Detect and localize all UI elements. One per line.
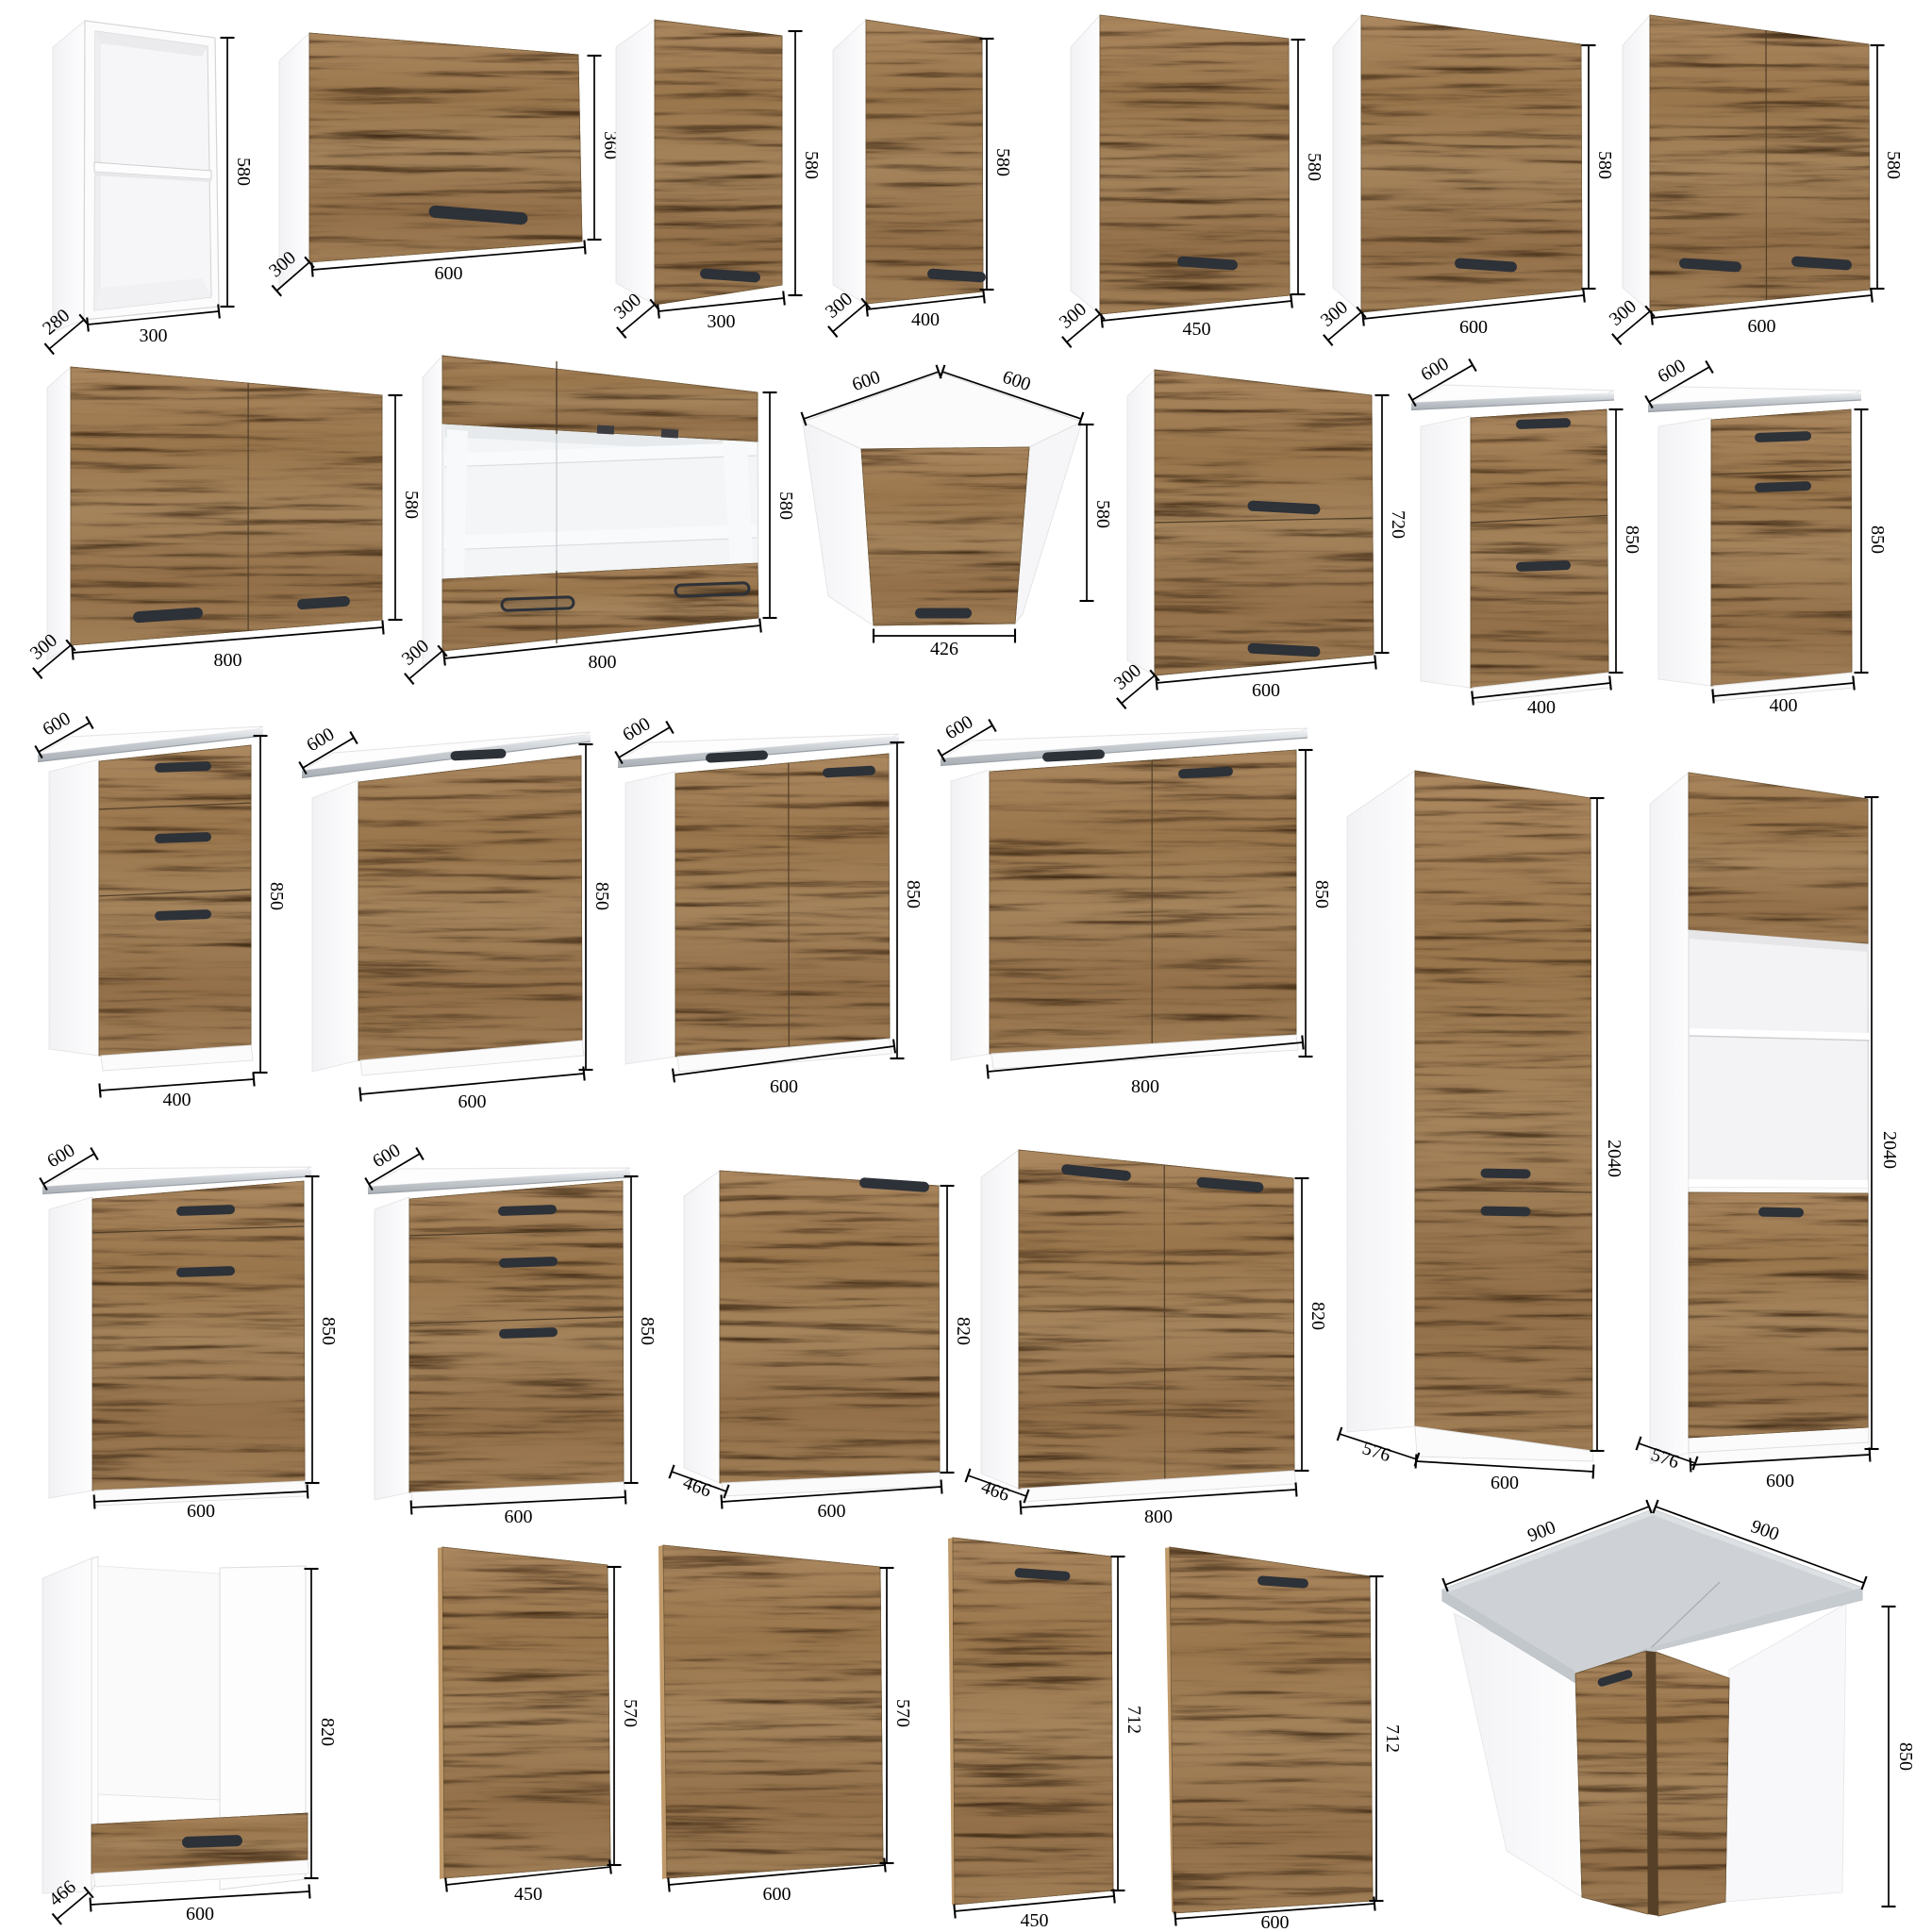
svg-text:720: 720: [1388, 510, 1408, 539]
svg-text:820: 820: [317, 1718, 338, 1746]
svg-text:800: 800: [1131, 1076, 1159, 1097]
svg-text:600: 600: [458, 1091, 487, 1112]
svg-text:600: 600: [818, 1501, 846, 1522]
svg-text:580: 580: [775, 491, 796, 520]
svg-text:450: 450: [1183, 319, 1211, 340]
svg-text:580: 580: [1092, 500, 1113, 528]
svg-text:400: 400: [163, 1090, 192, 1110]
svg-text:850: 850: [1311, 880, 1332, 908]
svg-text:600: 600: [763, 1884, 791, 1905]
svg-text:850: 850: [266, 882, 287, 910]
svg-text:400: 400: [1527, 697, 1556, 718]
svg-text:800: 800: [589, 652, 617, 673]
svg-text:426: 426: [930, 639, 958, 659]
svg-text:400: 400: [911, 309, 940, 330]
svg-text:400: 400: [1770, 695, 1798, 716]
svg-text:2040: 2040: [1604, 1140, 1624, 1177]
svg-text:580: 580: [401, 491, 422, 519]
svg-text:800: 800: [214, 650, 242, 671]
svg-text:820: 820: [953, 1317, 974, 1345]
svg-text:850: 850: [637, 1317, 658, 1345]
svg-text:850: 850: [1895, 1742, 1916, 1771]
svg-text:580: 580: [1594, 151, 1615, 179]
svg-text:850: 850: [318, 1317, 339, 1345]
svg-text:850: 850: [903, 880, 924, 908]
svg-text:580: 580: [1304, 153, 1324, 181]
svg-text:570: 570: [620, 1699, 641, 1727]
svg-text:600: 600: [1491, 1473, 1519, 1493]
svg-text:712: 712: [1124, 1706, 1144, 1734]
svg-text:600: 600: [505, 1507, 533, 1527]
svg-text:712: 712: [1382, 1724, 1403, 1753]
svg-text:450: 450: [1021, 1910, 1049, 1931]
svg-text:600: 600: [1252, 680, 1280, 701]
svg-text:600: 600: [435, 263, 463, 284]
svg-text:600: 600: [1766, 1471, 1794, 1491]
svg-text:600: 600: [1261, 1912, 1290, 1932]
svg-text:300: 300: [140, 325, 168, 346]
svg-text:600: 600: [1459, 317, 1488, 338]
svg-text:850: 850: [1867, 525, 1888, 554]
svg-text:600: 600: [186, 1904, 214, 1924]
svg-text:850: 850: [1622, 525, 1642, 554]
svg-text:2040: 2040: [1879, 1131, 1900, 1169]
svg-text:850: 850: [591, 882, 612, 910]
svg-text:580: 580: [801, 151, 822, 179]
svg-text:570: 570: [892, 1699, 913, 1727]
svg-text:800: 800: [1144, 1507, 1173, 1527]
svg-text:300: 300: [708, 311, 736, 332]
svg-text:580: 580: [1883, 151, 1904, 179]
svg-text:600: 600: [1748, 316, 1776, 337]
svg-text:600: 600: [187, 1501, 215, 1522]
svg-text:580: 580: [992, 148, 1013, 176]
svg-text:600: 600: [770, 1076, 798, 1097]
svg-text:820: 820: [1307, 1302, 1328, 1330]
svg-text:580: 580: [233, 158, 254, 186]
svg-text:450: 450: [514, 1884, 542, 1905]
